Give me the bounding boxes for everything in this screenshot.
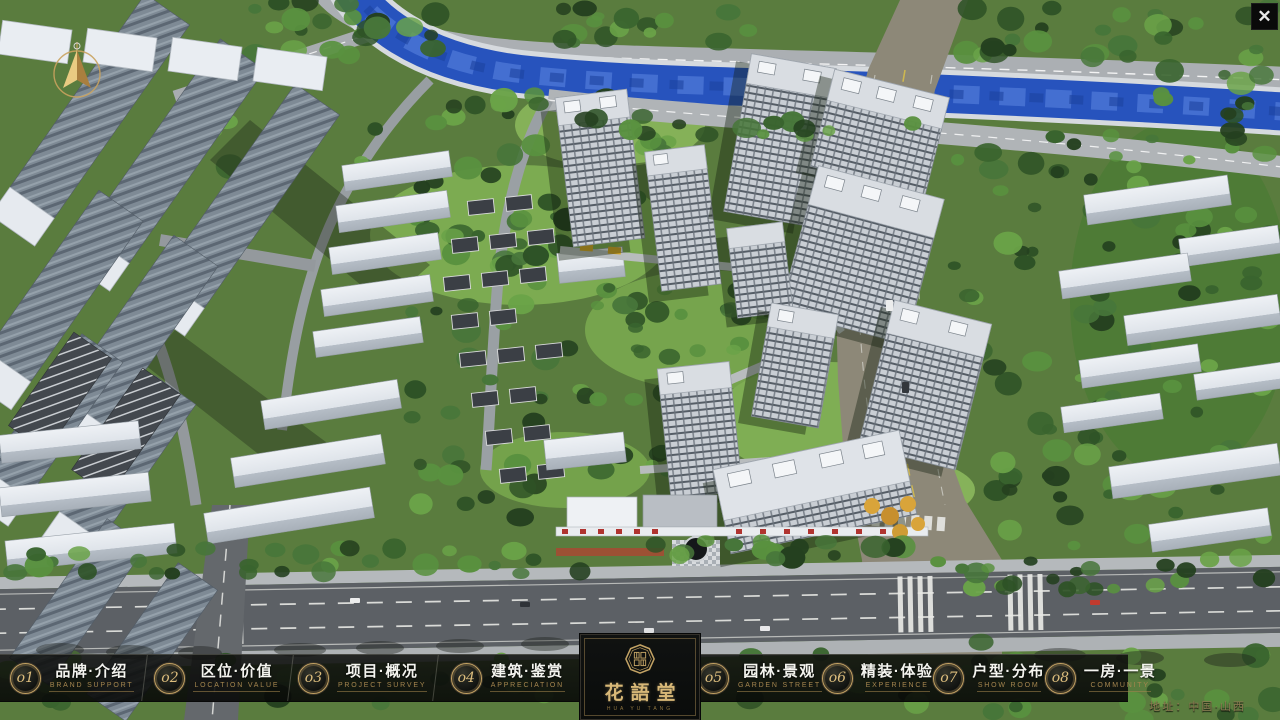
masterplan-3d-view[interactable] bbox=[0, 0, 1280, 720]
menu-label-en: EXPERIENCE bbox=[865, 682, 930, 691]
menu-label-zh: 品牌·介绍 bbox=[55, 664, 128, 680]
close-button[interactable]: ✕ bbox=[1251, 3, 1278, 30]
menu-item-brand[interactable]: o1 品牌·介绍 BRAND SUPPORT bbox=[0, 655, 144, 701]
sales-presentation-window: ✕ o1 品牌·介绍 BRAND SUPPORT o2 区位·价值 LOCATI… bbox=[0, 0, 1280, 720]
menu-number-badge: o7 bbox=[933, 663, 964, 694]
project-name-latin: HUA YU TANG bbox=[607, 706, 673, 712]
menu-group-right: o5 园林·景观 GARDEN STREET o6 精装·体验 EXPERIEN… bbox=[698, 654, 1128, 702]
menu-group-left: o1 品牌·介绍 BRAND SUPPORT o2 区位·价值 LOCATION… bbox=[0, 654, 580, 702]
menu-label-zh: 项目·概况 bbox=[346, 664, 419, 680]
menu-item-floorplan[interactable]: o7 户型·分布 SHOW ROOM bbox=[933, 655, 1045, 701]
menu-number-badge: o8 bbox=[1045, 663, 1076, 694]
menu-item-garden[interactable]: o5 园林·景观 GARDEN STREET bbox=[698, 655, 822, 701]
menu-item-architecture[interactable]: o4 建筑·鉴赏 APPRECIATION bbox=[436, 655, 580, 701]
menu-label-en: BRAND SUPPORT bbox=[49, 682, 135, 691]
menu-number-badge: o6 bbox=[822, 663, 853, 694]
menu-label-en: COMMUNITY bbox=[1089, 682, 1150, 691]
menu-number-badge: o3 bbox=[298, 663, 329, 694]
menu-label-zh: 园林·景观 bbox=[743, 664, 816, 680]
menu-label-zh: 户型·分布 bbox=[972, 664, 1045, 680]
seal-emblem-icon bbox=[624, 643, 656, 675]
menu-number-badge: o1 bbox=[10, 663, 41, 694]
project-logo-panel[interactable]: 花語堂 HUA YU TANG bbox=[580, 634, 700, 720]
menu-label-en: LOCATION VALUE bbox=[193, 682, 280, 691]
menu-label-en: APPRECIATION bbox=[490, 682, 565, 691]
menu-item-views[interactable]: o8 一房·一景 COMMUNITY bbox=[1045, 655, 1157, 701]
menu-label-zh: 建筑·鉴赏 bbox=[491, 664, 564, 680]
menu-label-zh: 精装·体验 bbox=[861, 664, 934, 680]
menu-number-badge: o2 bbox=[154, 663, 185, 694]
menu-label-en: GARDEN STREET bbox=[737, 682, 822, 691]
menu-number-badge: o4 bbox=[451, 663, 482, 694]
project-name: 花語堂 bbox=[604, 678, 682, 705]
menu-item-interior[interactable]: o6 精装·体验 EXPERIENCE bbox=[822, 655, 934, 701]
menu-label-en: PROJECT SURVEY bbox=[337, 682, 427, 691]
menu-item-location[interactable]: o2 区位·价值 LOCATION VALUE bbox=[145, 655, 289, 701]
compass-north-icon bbox=[46, 38, 108, 102]
address-text: 地址：中国·山西 bbox=[1149, 698, 1246, 714]
menu-item-project[interactable]: o3 项目·概况 PROJECT SURVEY bbox=[291, 655, 435, 701]
menu-label-zh: 一房·一景 bbox=[1084, 664, 1157, 680]
menu-label-zh: 区位·价值 bbox=[201, 664, 274, 680]
menu-label-en: SHOW ROOM bbox=[977, 682, 1041, 691]
menu-number-badge: o5 bbox=[698, 663, 729, 694]
